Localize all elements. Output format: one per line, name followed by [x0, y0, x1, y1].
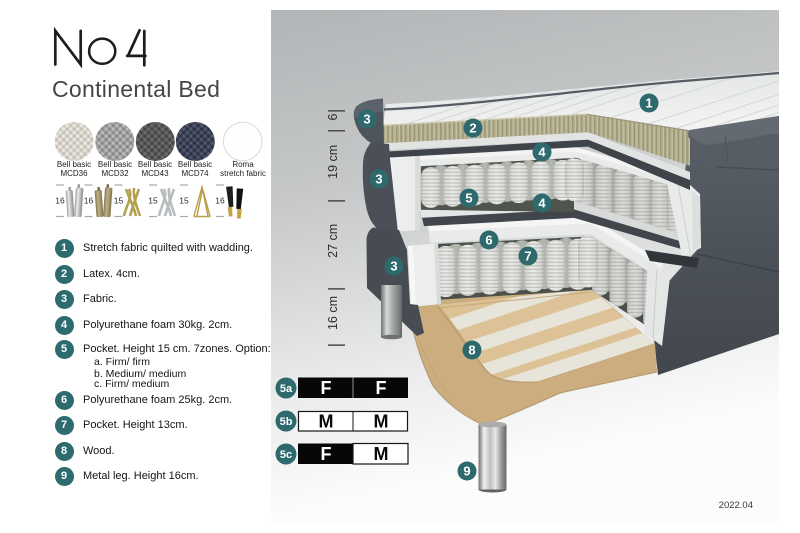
svg-text:F: F — [321, 378, 332, 398]
svg-text:2: 2 — [469, 121, 476, 136]
svg-text:27 cm: 27 cm — [326, 224, 340, 258]
svg-text:F: F — [376, 378, 387, 398]
svg-text:1: 1 — [645, 96, 652, 111]
svg-text:5b: 5b — [280, 416, 293, 428]
svg-text:5a: 5a — [280, 383, 293, 395]
svg-text:M: M — [374, 412, 389, 432]
svg-text:M: M — [319, 412, 334, 432]
svg-text:2022.04: 2022.04 — [719, 500, 753, 511]
svg-text:3: 3 — [375, 172, 382, 187]
svg-text:4: 4 — [538, 145, 546, 160]
svg-text:3: 3 — [390, 259, 397, 274]
svg-text:8: 8 — [468, 343, 475, 358]
svg-text:6: 6 — [326, 113, 340, 120]
svg-text:F: F — [321, 444, 332, 464]
svg-text:4: 4 — [538, 196, 546, 211]
svg-text:9: 9 — [463, 464, 470, 479]
svg-text:M: M — [374, 444, 389, 464]
svg-text:6: 6 — [485, 233, 492, 248]
svg-text:5c: 5c — [280, 449, 292, 461]
svg-text:16 cm: 16 cm — [326, 296, 340, 330]
svg-text:5: 5 — [465, 191, 472, 206]
svg-text:19 cm: 19 cm — [326, 145, 340, 179]
svg-text:3: 3 — [363, 112, 370, 127]
svg-text:7: 7 — [524, 249, 531, 264]
